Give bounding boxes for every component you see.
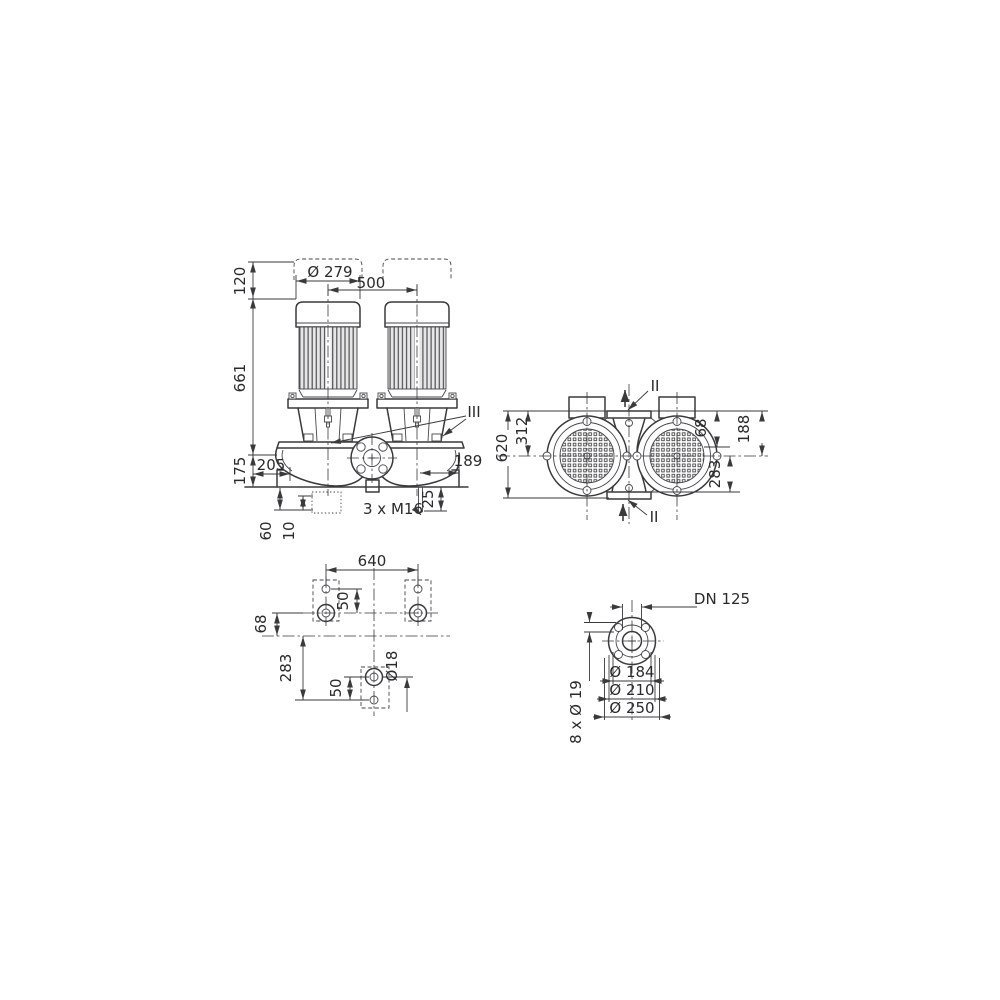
front-elevation-view: 120 661 175 Ø 279 500 205 189 60 [231,259,482,541]
dim-label-68-plan: 68 [252,614,270,633]
dim-label-312: 312 [513,417,531,446]
end-view: II II 620 312 68 188 283 [493,377,768,526]
note-label-m16: 3 x M16 [363,500,423,518]
dim-label-dia210: Ø 210 [609,681,654,699]
discharge-flange [347,433,397,483]
dim-label-205: 205 [257,456,286,474]
dim-label-dia279: Ø 279 [307,263,352,281]
foundation-plan-view: 640 50 68 283 50 Ø18 [252,552,450,716]
dim-label-661: 661 [231,364,249,393]
dim-label-dia18: Ø18 [383,651,401,682]
label-bolt-holes: 8 x Ø 19 [567,680,585,744]
motor-right-removal-space-dashed [383,259,451,280]
dim-label-620: 620 [493,434,511,463]
dim-label-188: 188 [735,415,753,444]
technical-drawing: 120 661 175 Ø 279 500 205 189 60 [0,0,1000,1000]
dim-label-68-end: 68 [692,418,710,437]
dim-label-189: 189 [454,452,483,470]
dim-label-10: 10 [280,521,298,540]
dim-label-60: 60 [257,521,275,540]
dim-label-dia184: Ø 184 [609,663,654,681]
dim-label-50-top: 50 [334,591,352,610]
dim-label-50-bottom: 50 [327,678,345,697]
dim-label-dia250: Ø 250 [609,699,654,717]
dim-label-283-plan: 283 [277,654,295,683]
flange-dimensions: DN 125 8 x Ø 19 Ø 184 Ø 210 Ø 250 [567,590,750,744]
section-label-ii-top: II [651,377,660,395]
dim-label-500: 500 [357,274,386,292]
label-dn125: DN 125 [694,590,750,608]
foundation-pad-dotted [312,492,341,513]
dim-label-640: 640 [358,552,387,570]
dim-label-283-end: 283 [706,460,724,489]
plan-dimensions: 640 50 68 283 50 Ø18 [252,552,418,712]
section-label-ii-bottom: II [650,508,659,526]
plan-horizontal-centerlines [262,613,450,636]
drain-tab [366,480,379,492]
dim-label-120: 120 [231,267,249,296]
section-label-iii: III [467,403,480,421]
flange-detail-view: DN 125 8 x Ø 19 Ø 184 Ø 210 Ø 250 [567,590,750,744]
dim-label-175: 175 [231,457,249,486]
pump-dimensional-drawing-page: 120 661 175 Ø 279 500 205 189 60 [0,0,1000,1000]
